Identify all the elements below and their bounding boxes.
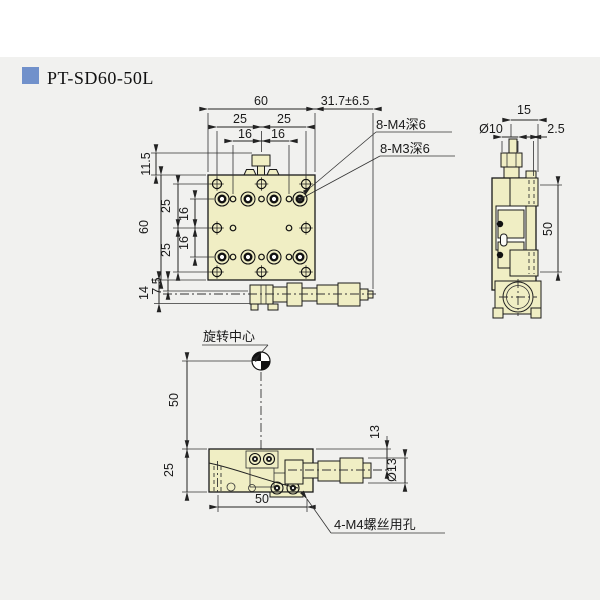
dim-width-60: 60 [254, 94, 268, 108]
dim-50-side: 50 [541, 222, 555, 236]
dim-travel: 31.7±6.5 [321, 94, 370, 108]
dim-dia10: Ø10 [479, 122, 503, 136]
dim-50-bottom: 50 [255, 492, 269, 506]
upper-screw [497, 221, 503, 227]
label-8-m3: 8-M3深6 [380, 141, 430, 156]
clamp-knob-neck [504, 167, 519, 178]
clamp-knob [501, 153, 522, 167]
label-rotation-center: 旋转中心 [203, 329, 255, 344]
dim-7-5: 7.5 [150, 277, 164, 294]
top-tab [526, 171, 536, 178]
dim-v25-upper: 25 [159, 199, 173, 213]
accent-square-icon [22, 67, 39, 84]
dim-16-left: 16 [238, 127, 252, 141]
dim-16-right: 16 [271, 127, 285, 141]
catalog-page: PT-SD60-50L [0, 0, 600, 600]
top-knob-stem [258, 166, 265, 175]
dim-2-5: 2.5 [547, 122, 564, 136]
rotation-center-symbol [252, 352, 270, 370]
dim-dia13: Ø13 [385, 458, 399, 482]
clamp-screw-tip [509, 139, 517, 153]
knob-bump-right [267, 170, 279, 176]
foot-left [493, 308, 503, 318]
lower-screw [497, 252, 503, 258]
label-8-m4: 8-M4深6 [376, 117, 426, 132]
top-knob [252, 155, 270, 166]
dim-25-right: 25 [277, 112, 291, 126]
dim-15: 15 [517, 103, 531, 117]
top-band [0, 0, 600, 57]
base-foot [270, 492, 303, 497]
dim-14: 14 [137, 286, 151, 300]
dim-50-vertical: 50 [167, 393, 181, 407]
dim-13: 13 [368, 425, 382, 439]
page-background [0, 57, 600, 600]
dim-height-60: 60 [137, 220, 151, 234]
dim-v25-lower: 25 [159, 243, 173, 257]
guide-slot [501, 234, 508, 246]
page-title: PT-SD60-50L [47, 68, 154, 88]
dim-25-left: 25 [233, 112, 247, 126]
technical-drawing: PT-SD60-50L [0, 0, 600, 600]
dim-11-5: 11.5 [139, 152, 153, 175]
dim-25-front: 25 [162, 463, 176, 477]
label-4-m4-holes: 4-M4螺丝用孔 [334, 517, 416, 532]
dim-v16-lower: 16 [177, 236, 191, 250]
dim-v16-upper: 16 [177, 207, 191, 221]
foot-right [531, 308, 541, 318]
knob-bump-left [244, 170, 256, 176]
